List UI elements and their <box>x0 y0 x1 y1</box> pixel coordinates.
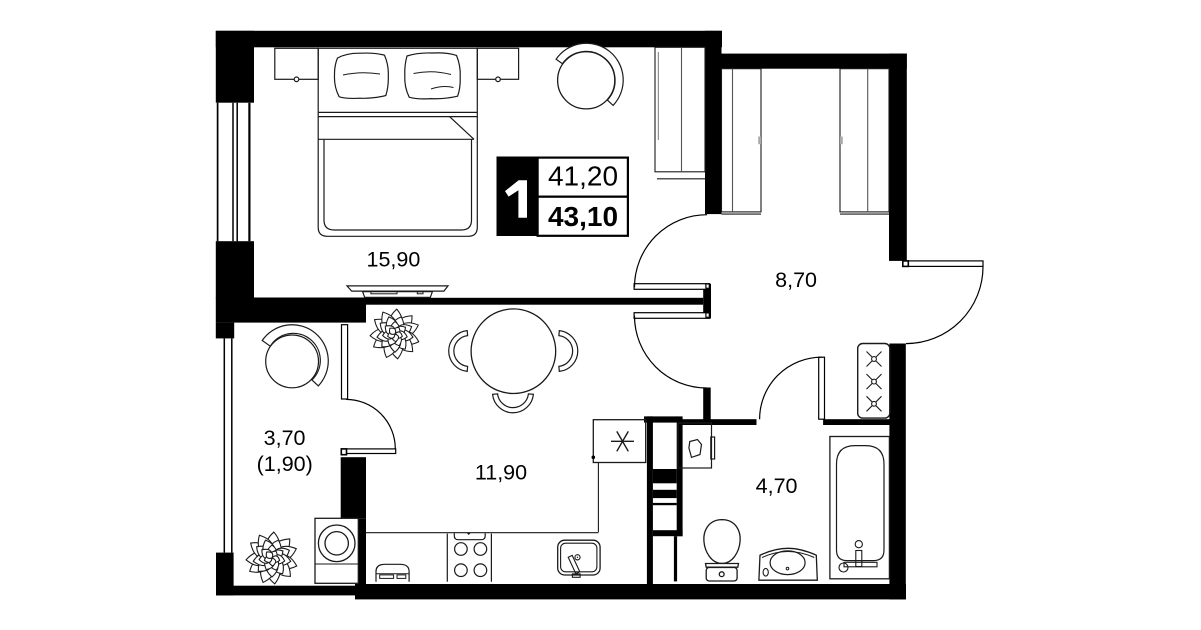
svg-text:4,70: 4,70 <box>756 474 798 498</box>
svg-text:3,70: 3,70 <box>264 426 306 450</box>
svg-text:43,10: 43,10 <box>548 201 618 232</box>
svg-text:15,90: 15,90 <box>366 248 420 272</box>
svg-text:(1,90): (1,90) <box>257 452 313 476</box>
svg-text:8,70: 8,70 <box>775 268 817 292</box>
svg-text:11,90: 11,90 <box>475 461 527 485</box>
svg-text:41,20: 41,20 <box>548 161 618 192</box>
